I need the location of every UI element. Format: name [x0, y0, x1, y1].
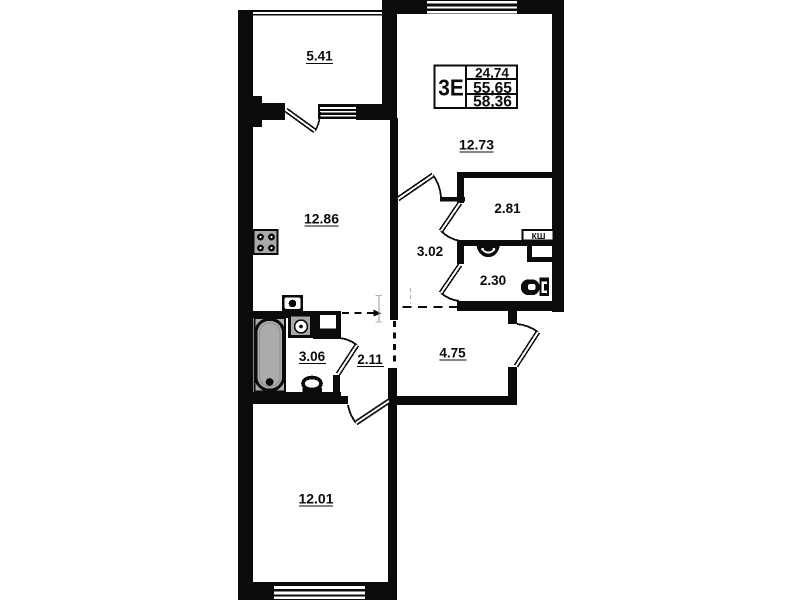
svg-text:12.01: 12.01: [298, 491, 333, 507]
svg-text:12.73: 12.73: [459, 137, 494, 153]
svg-text:24,74: 24,74: [475, 66, 509, 81]
svg-text:12.86: 12.86: [304, 211, 339, 227]
svg-text:3.06: 3.06: [299, 349, 326, 364]
svg-text:58,36: 58,36: [473, 94, 512, 111]
svg-text:2.81: 2.81: [494, 201, 521, 216]
svg-text:4.75: 4.75: [439, 346, 466, 361]
svg-text:2.11: 2.11: [357, 352, 383, 367]
svg-text:5.41: 5.41: [306, 49, 333, 64]
svg-text:2.30: 2.30: [480, 273, 506, 288]
svg-text:КШ: КШ: [532, 231, 546, 241]
svg-text:3.02: 3.02: [417, 244, 443, 259]
svg-text:3Е: 3Е: [438, 75, 464, 101]
